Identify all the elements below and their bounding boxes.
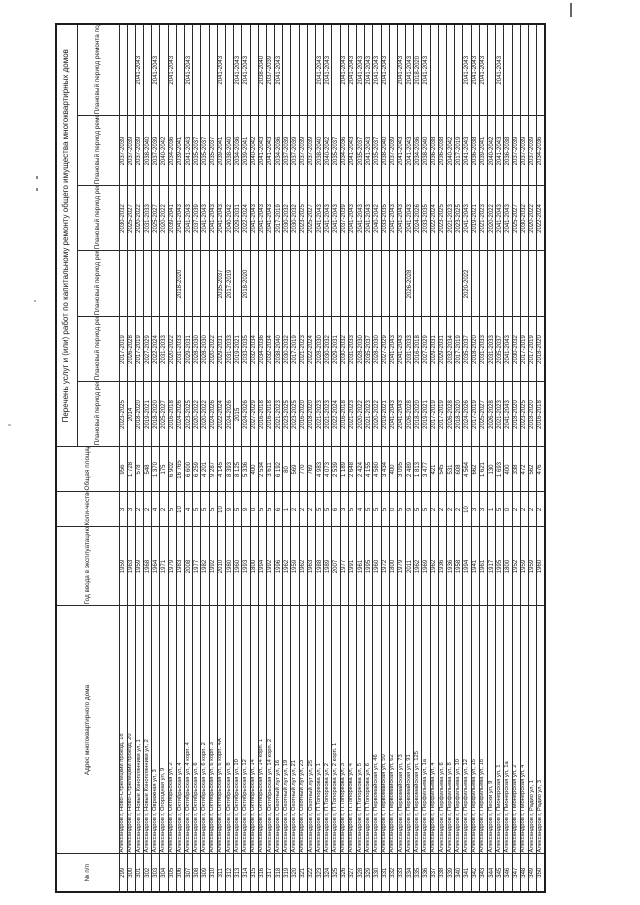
table-row: 330Александров г, Первомайская ул, 46196… [373,24,381,892]
cell-lift: 2035-2037 [217,251,225,317]
table-row: 310Александров г, Октябрьская ул, 6 корп… [209,24,217,892]
cell-num: 301 [135,854,143,892]
cell-basement [512,24,520,116]
cell-year: 1971 [160,527,168,606]
cell-num: 325 [332,854,340,892]
cell-vis: 2031-2033 [225,317,233,382]
cell-year: 1996 [275,527,283,606]
cell-facade: 2041-2043 [356,186,364,251]
cell-lift [332,251,340,317]
cell-address: Александров г, Октябрьская ул, 12 [242,606,250,854]
cell-floors: 5 [373,492,381,527]
cell-foundation: 2039-2041 [242,116,250,186]
cell-foundation: 2036-2038 [504,116,512,186]
cell-num: 300 [127,854,135,892]
cell-foundation: 2037-2039 [528,116,536,186]
cell-facade: 2019-2021 [471,186,479,251]
cell-foundation: 2037-2039 [283,116,291,186]
cell-roof: 2024-2026 [176,382,184,447]
cell-floors: 2 [291,492,299,527]
cell-foundation: 2035-2037 [332,116,340,186]
cell-floors: 2 [512,492,520,527]
cell-num: 345 [496,854,504,892]
cell-roof: 2021-2023 [275,382,283,447]
cell-floors: 10 [463,492,471,527]
cell-area: 769 [307,447,315,492]
cell-floors: 10 [217,492,225,527]
cell-num: 334 [406,854,414,892]
cell-year: 1977 [193,527,201,606]
cell-area: 9 287 [209,447,217,492]
cell-lift [127,251,135,317]
cell-area: 1 370 [152,447,160,492]
cell-address: Александров г, Перфильева ул, 12 [463,606,471,854]
cell-vis: 2027-2029 [422,317,430,382]
cell-num: 333 [397,854,405,892]
cell-roof: 2018-2020 [512,382,520,447]
col-header-foundation: Плановый период ремонта фундамента [77,116,119,186]
cell-vis: 2031-2033 [406,317,414,382]
cell-foundation: 2038-2040 [144,116,152,186]
cell-num: 302 [144,854,152,892]
cell-basement: 2041-2043 [356,24,364,116]
cell-floors: 2 [430,492,438,527]
cell-roof: 2024-2026 [209,382,217,447]
table-row: 317Александров г, Октябрьская ул, 14 кор… [266,24,274,892]
cell-num: 348 [520,854,528,892]
cell-floors: 1 [283,492,291,527]
cell-area: 4 580 [373,447,381,492]
cell-year: 1988 [316,527,324,606]
cell-foundation: 2017-2019 [455,116,463,186]
cell-basement: 2041-2043 [217,24,225,116]
cell-floors: 2 [299,492,307,527]
cell-lift [258,251,266,317]
cell-area: 3 095 [397,447,405,492]
cell-lift [520,251,528,317]
cell-num: 340 [455,854,463,892]
cell-foundation: 2039-2041 [217,116,225,186]
cell-area: 662 [471,447,479,492]
cell-roof: 2016-2018 [168,382,176,447]
cell-year: 1994 [258,527,266,606]
cell-area: 2 424 [356,447,364,492]
cell-foundation: 2037-2039 [512,116,520,186]
cell-area: 6 192 [275,447,283,492]
cell-vis: 2028-2030 [316,317,324,382]
cell-basement: 2041-2043 [168,24,176,116]
cell-floors: 2 [537,492,545,527]
cell-floors: 4 [185,492,193,527]
cell-foundation: 2041-2043 [365,116,373,186]
cell-basement: 2041-2043 [381,24,389,116]
cell-year: 1952 [512,527,520,606]
table-row: 311Александров г, Октябрьская ул, 6 корп… [217,24,225,892]
cell-address: Александров г, Пионерская ул, 1а [504,606,512,854]
cell-basement: 2041-2043 [275,24,283,116]
cell-floors: 6 [275,492,283,527]
cell-facade: 2041-2043 [316,186,324,251]
scanned-page: № п/п Адрес многоквартирного дома Год вв… [0,0,640,905]
cell-foundation: 2035-2037 [373,116,381,186]
cell-address: Александров г, Овражная ул, 3 [152,606,160,854]
cell-area: 531 [447,447,455,492]
cell-year: 1962 [414,527,422,606]
cell-num: 317 [266,854,274,892]
cell-basement: 2041-2043 [242,24,250,116]
table-row: 322Александров г, Охотный луг ул, 251963… [307,24,315,892]
cell-address: Александров г, П.Топоркова ул, 2 [324,606,332,854]
cell-num: 316 [258,854,266,892]
cell-area: 608 [455,447,463,492]
cell-num: 312 [225,854,233,892]
cell-facade: 2024-2026 [414,186,422,251]
cell-basement [160,24,168,116]
cell-basement: 2041-2043 [496,24,504,116]
cell-area: 8 393 [225,447,233,492]
cell-vis: 2031-2033 [348,317,356,382]
cell-basement [193,24,201,116]
table-row: 299Александров г, Ново-Стрелецкий проезд… [119,24,127,892]
cell-floors: 5 [316,492,324,527]
cell-basement [455,24,463,116]
cell-num: 322 [307,854,315,892]
cell-basement: 2041-2043 [135,24,143,116]
cell-lift [168,251,176,317]
col-header-address: Адрес многоквартирного дома [56,606,119,854]
cell-num: 344 [487,854,495,892]
cell-address: Александров г, Новые Коноплянники ул, 1 [135,606,143,854]
cell-roof: 2023-2025 [119,382,127,447]
scan-artifact [8,424,11,426]
cell-floors: 5 [324,492,332,527]
cell-address: Александров г, Перфильева ул, 4 [430,606,438,854]
cell-facade: 2041-2043 [266,186,274,251]
cell-facade: 2040-2042 [373,186,381,251]
cell-lift [381,251,389,317]
cell-area: 8 125 [234,447,242,492]
cell-foundation: 2034-2036 [234,116,242,186]
cell-address: Александров г, П.Топоркова ул, 3 [340,606,348,854]
cell-roof: 2020-2022 [201,382,209,447]
cell-roof: 2021-2023 [496,382,504,447]
table-row: 347Александров г, Пионерская ул, 2195223… [512,24,520,892]
cell-address: Александров г, Первомайская ул, 125 [414,606,422,854]
cell-roof: 2015 [234,382,242,447]
cell-num: 324 [324,854,332,892]
cell-foundation: 2037-2039 [135,116,143,186]
cell-vis: 2020-2022 [209,317,217,382]
cell-vis: 2041-2043 [397,317,405,382]
cell-floors: 2 [447,492,455,527]
table-row: 345Александров г, Пионерская ул, 1199551… [496,24,504,892]
cell-address: Александров г, Октябрьская ул, 4 корп. 4 [185,606,193,854]
table-row: 348Александров г, Пионерская ул, 4195924… [520,24,528,892]
cell-basement: 2041-2043 [406,24,414,116]
cell-address: Александров г, Перфильева ул, 6 [438,606,446,854]
col-header-year: Год ввода в эксплуатацию [56,527,119,606]
cell-basement: 2041-2043 [422,24,430,116]
table-row: 318Александров г, Охотный луг ул, 161996… [275,24,283,892]
cell-basement: 2037-2039 [266,24,274,116]
cell-year: 1917 [487,527,495,606]
cell-vis: 2022-2024 [307,317,315,382]
cell-vis: 2029-2031 [438,317,446,382]
cell-area: 4 201 [201,447,209,492]
cell-foundation: 2039-2041 [176,116,184,186]
cell-floors: 10 [176,492,184,527]
cell-lift [422,251,430,317]
cell-roof: 2018-2020 [414,382,422,447]
table-row: 349Александров г, Радио ул, 119592562201… [528,24,536,892]
cell-area: 80 [283,447,291,492]
cell-facade: 2041-2043 [389,186,397,251]
table-row: 333Александров г, Первомайская ул, 73197… [397,24,405,892]
cell-vis: 2035-2037 [463,317,471,382]
cell-roof: 2041-2043 [397,382,405,447]
cell-vis: 2033-2035 [242,317,250,382]
cell-num: 313 [234,854,242,892]
cell-facade: 2033-2035 [381,186,389,251]
cell-year: 1959 [291,527,299,606]
cell-foundation: 2034-2036 [275,116,283,186]
cell-foundation: 2041-2043 [258,116,266,186]
cell-foundation: 2035-2037 [356,116,364,186]
table-row: 342Александров г, Перфильева ул, 1519413… [471,24,479,892]
cell-num: 335 [414,854,422,892]
cell-vis: 2030-2032 [283,317,291,382]
cell-lift [537,251,545,317]
cell-floors: 9 [225,492,233,527]
cell-roof: 2041-2043 [504,382,512,447]
rotated-table-wrapper: № п/п Адрес многоквартирного дома Год вв… [55,25,597,893]
cell-vis: 2029-2031 [332,317,340,382]
scan-artifact [36,176,38,179]
cell-facade: 2041-2043 [397,186,405,251]
cell-num: 304 [160,854,168,892]
cell-num: 339 [447,854,455,892]
cell-foundation: 2041-2043 [266,116,274,186]
cell-year: 1969 [422,527,430,606]
cell-num: 343 [479,854,487,892]
table-row: 343Александров г, Перфильева ул, 1819613… [479,24,487,892]
table-row: 346Александров г, Пионерская ул, 1а18000… [504,24,512,892]
cell-foundation: 2037-2039 [520,116,528,186]
cell-floors: 5 [414,492,422,527]
table-row: 328Александров г, П.Топоркова ул, 519614… [356,24,364,892]
cell-lift [356,251,364,317]
cell-area: 3 434 [381,447,389,492]
table-row: 341Александров г, Перфильева ул, 1219941… [463,24,471,892]
cell-year: 1968 [144,527,152,606]
cell-floors: 6 [332,492,340,527]
cell-area: 2 539 [332,447,340,492]
cell-num: 349 [528,854,536,892]
cell-facade: 2041-2043 [209,186,217,251]
cell-floors: 0 [504,492,512,527]
cell-lift [185,251,193,317]
table-row: 307Александров г, Октябрьская ул, 4 корп… [185,24,193,892]
cell-lift [307,251,315,317]
cell-basement [299,24,307,116]
cell-address: Александров г, Новые Коноплянники ул, 2 [144,606,152,854]
cell-basement [119,24,127,116]
cell-year: 1959 [119,527,127,606]
cell-area: 569 [291,447,299,492]
cell-basement: 2041-2043 [348,24,356,116]
cell-basement [332,24,340,116]
cell-basement [520,24,528,116]
cell-address: Александров г, Перфильева ул, 18 [479,606,487,854]
cell-year: 1958 [455,527,463,606]
cell-address: Александров г, Радио ул, 1 [528,606,536,854]
cell-facade: 2041-2043 [201,186,209,251]
cell-roof: 2019-2021 [381,382,389,447]
cell-floors: 5 [422,492,430,527]
cell-foundation: 2037-2039 [127,116,135,186]
cell-floors: 0 [250,492,258,527]
cell-area: 1 621 [479,447,487,492]
cell-foundation: 2037-2039 [389,116,397,186]
cell-address: Александров г, Перфильева ул, 10 [455,606,463,854]
cell-address: Александров г, Октябрьская ул, 14 [250,606,258,854]
table-row: 301Александров г, Новые Коноплянники ул,… [135,24,143,892]
col-header-basement: Плановый период ремонта подвала [77,24,119,116]
cell-lift [479,251,487,317]
cell-roof: 2024-2026 [463,382,471,447]
cell-area: 4 564 [463,447,471,492]
cell-area: 400 [389,447,397,492]
cell-vis: 2016-2018 [414,317,422,382]
cell-year: 1959 [528,527,536,606]
cell-floors: 2 [520,492,528,527]
cell-lift [250,251,258,317]
cell-lift: 2026-2028 [406,251,414,317]
cell-basement [225,24,233,116]
cell-vis: 2017-2019 [135,317,143,382]
col-header-area: Общая площадь [56,447,119,492]
cell-year: 1964 [152,527,160,606]
table-row: 323Александров г, П.Топоркова ул, 119885… [316,24,324,892]
cell-lift [209,251,217,317]
cell-area: 6 600 [185,447,193,492]
cell-num: 342 [471,854,479,892]
cell-year: 1994 [463,527,471,606]
cell-foundation: 2038-2040 [422,116,430,186]
cell-foundation: 2036-2038 [430,116,438,186]
cell-facade: 2037-2039 [340,186,348,251]
cell-facade: 2030-2032 [520,186,528,251]
cell-floors: 4 [356,492,364,527]
cell-address: Александров г, П.Топоркова ул, 1 [316,606,324,854]
cell-address: Александров г, Октябрьская ул, 8 [225,606,233,854]
cell-address: Александров г, Перфильева ул, 15 [471,606,479,854]
table-row: 313Александров г, Октябрьская ул, 101960… [234,24,242,892]
cell-area: 4 145 [217,447,225,492]
cell-address: Александров г, Пионерская ул, 1 [496,606,504,854]
cell-address: Александров г, Пески ул, 9 [487,606,495,854]
cell-floors: 5 [168,492,176,527]
cell-foundation: 2041-2043 [406,116,414,186]
cell-address: Александров г, Первомайская ул, 50 [381,606,389,854]
cell-floors: 5 [234,492,242,527]
cell-year: 1961 [356,527,364,606]
cell-area: 6 902 [168,447,176,492]
cell-num: 329 [365,854,373,892]
cell-basement: 2041-2043 [152,24,160,116]
cell-vis: 2031-2033 [479,317,487,382]
cell-foundation: 2036-2038 [471,116,479,186]
table-row: 302Александров г, Новые Коноплянники ул,… [144,24,152,892]
cell-vis: 2017-2019 [528,317,536,382]
cell-facade: 2030-2032 [119,186,127,251]
cell-roof: 2018-2020 [528,382,536,447]
cell-facade: 2030-2032 [283,186,291,251]
cell-basement [537,24,545,116]
cell-lift [135,251,143,317]
cell-foundation: 2038-2040 [316,116,324,186]
cell-num: 320 [291,854,299,892]
cell-num: 350 [537,854,545,892]
cell-basement [389,24,397,116]
cell-year: 1972 [381,527,389,606]
cell-roof: 2016-2020 [299,382,307,447]
cell-facade: 2023-2025 [299,186,307,251]
cell-area: 130 [487,447,495,492]
cell-address: Александров г, Октябрьская ул, 10 [234,606,242,854]
cell-floors: 5 [365,492,373,527]
cell-floors: 1 [487,492,495,527]
cell-roof: 2017-2019 [438,382,446,447]
cell-vis: 2030-2032 [340,317,348,382]
cell-lift [152,251,160,317]
cell-foundation: 2037-2039 [299,116,307,186]
cell-lift [455,251,463,317]
table-row: 320Александров г, Охотный луг ул, 211959… [291,24,299,892]
cell-area: 476 [537,447,545,492]
cell-area: 578 [135,447,143,492]
cell-lift [447,251,455,317]
cell-address: Александров г, Перфильева ул, 1а [422,606,430,854]
cell-area: 548 [144,447,152,492]
table-row: 321Александров г, Охотный луг ул, 231962… [299,24,307,892]
cell-basement [176,24,184,116]
cell-vis: 2018-2020 [537,317,545,382]
cell-year: 1989 [324,527,332,606]
cell-vis: 2028-2030 [373,317,381,382]
cell-year: 1961 [479,527,487,606]
table-row: 329Александров г, П.Топоркова ул, 619955… [365,24,373,892]
cell-address: Александров г, Охотный луг ул, 21 [291,606,299,854]
cell-vis: 2022-2024 [152,317,160,382]
cell-basement [144,24,152,116]
cell-floors: 2 [144,492,152,527]
cell-foundation: 2038-2040 [381,116,389,186]
cell-num: 341 [463,854,471,892]
cell-num: 315 [250,854,258,892]
scan-artifact [36,188,38,191]
cell-lift [430,251,438,317]
cell-vis: 2028-2030 [193,317,201,382]
cell-vis: 2032-2034 [250,317,258,382]
cell-basement: 2041-2043 [185,24,193,116]
cell-lift [160,251,168,317]
cell-facade: 2021-2023 [479,186,487,251]
cell-roof: 2021-2023 [348,382,356,447]
cell-year: 2008 [185,527,193,606]
cell-vis: 2017-2019 [291,317,299,382]
cell-year: 1995 [365,527,373,606]
